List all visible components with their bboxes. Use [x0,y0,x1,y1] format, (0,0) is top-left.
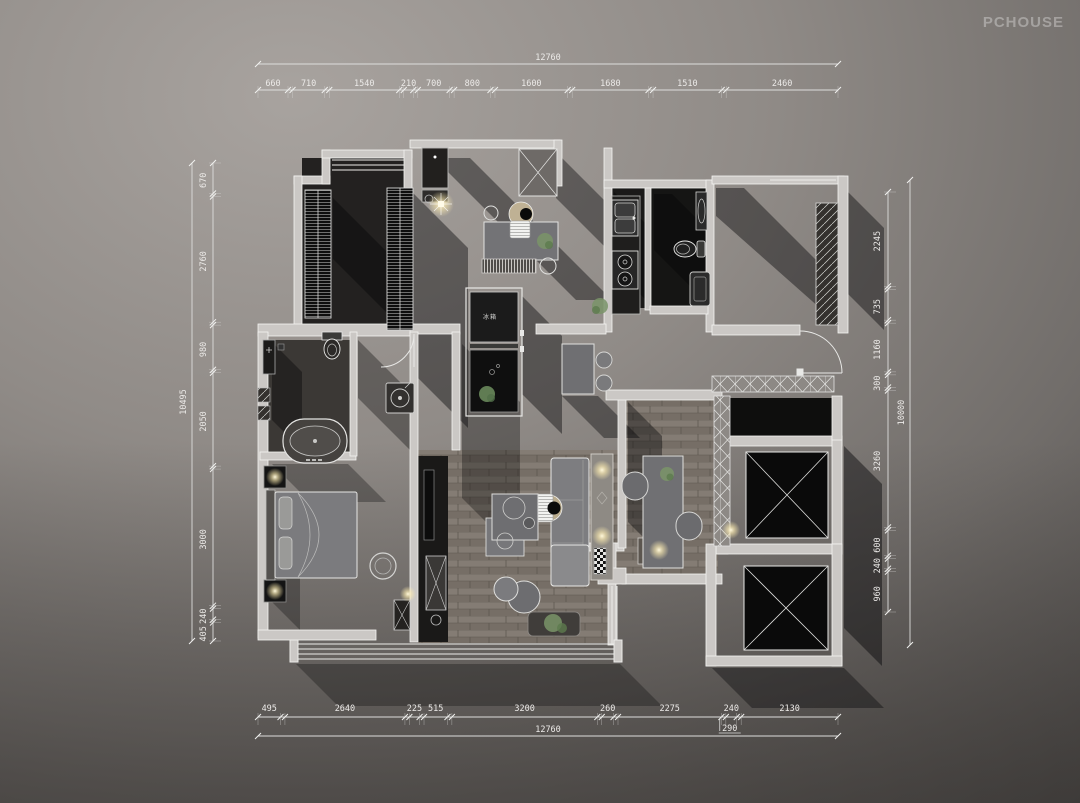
wardrobe-hatch-right [387,188,413,330]
refrigerator-cabinet: 冰箱 [466,288,524,416]
dim-label: 515 [428,704,443,714]
dim-label: 1540 [354,79,374,89]
dim-label: 2050 [199,411,209,431]
dim-label: 2130 [779,704,799,714]
bar-stool [596,352,612,368]
core-hatch-wall-h [712,376,834,392]
structural-column [519,149,557,196]
dim-label: 495 [262,704,277,714]
fridge-label: 冰箱 [483,313,497,321]
bed-icon [266,490,357,580]
dim-label: 210 [401,79,416,89]
dim-label: 960 [873,586,883,601]
dim-total-label: 12760 [535,53,561,63]
dim-label: 405 [199,626,209,641]
lamp-icon [649,540,669,560]
dim-total-label: 10000 [897,400,907,426]
dim-label: 225 [407,704,422,714]
bench-stripes [482,259,536,273]
dim-label: 3260 [873,451,883,471]
dim-label: 260 [600,704,615,714]
pouf [494,577,518,601]
dim-label: 700 [426,79,441,89]
dim-label: 3200 [514,704,534,714]
bar-stool [596,375,612,391]
lamp-icon [266,582,284,600]
wall-niche [258,388,270,402]
dim-label: 600 [873,537,883,552]
plant-icon [660,467,674,481]
dim-label: 2275 [659,704,679,714]
stove-icon [612,251,638,289]
kitchen [612,196,640,314]
dim-label: 1160 [873,339,883,359]
dim-label: 240 [199,608,209,623]
dim-label: 2640 [335,704,355,714]
dim-label: 735 [873,299,883,314]
elevator-shaft-1 [746,452,828,538]
bathtub-icon [283,419,347,463]
lamp-icon [428,191,454,217]
person-dining [509,202,533,238]
pillow [279,537,292,569]
tv-icon [424,470,434,540]
washbasin-icon [696,192,707,230]
wall-niche [258,406,270,420]
dim-label-extra: 290 [722,724,737,734]
dim-label: 670 [199,173,209,188]
lamp-icon [266,468,284,486]
doormat-small [594,548,606,574]
pillow [279,497,292,529]
plant-icon [537,233,553,249]
dim-label: 240 [724,704,739,714]
desk-chair [676,512,702,540]
dim-total-label: 10495 [179,389,189,415]
lamp-icon [722,521,740,539]
watermark: PCHOUSE [983,14,1064,31]
dim-label: 2760 [199,251,209,271]
floorplan-svg: 冰箱 [0,0,1080,803]
dim-label: 710 [301,79,316,89]
wardrobe-hatch-left [305,190,331,318]
dim-label: 660 [265,79,280,89]
desk-chair [622,472,648,500]
toilet-icon [674,241,705,257]
plant-icon [592,298,608,314]
door-panel [394,600,410,630]
floorplan-canvas: 冰箱 [0,0,1080,803]
plant-icon [479,386,495,402]
dim-label: 1510 [677,79,697,89]
shower-icon [690,272,710,306]
dim-label: 2460 [772,79,792,89]
dim-label: 3000 [199,529,209,549]
dim-label: 800 [465,79,480,89]
person-sofa [535,494,562,522]
dim-label: 980 [199,342,209,357]
bedroom-closet [816,203,838,325]
elevator-shaft-2 [744,566,828,650]
lamp-icon [400,586,416,602]
dim-total-label: 12760 [535,725,561,735]
dim-label: 1600 [521,79,541,89]
lamp-icon [592,526,612,546]
sofa-icon [551,458,589,586]
dim-label: 1680 [600,79,620,89]
lamp-icon [592,460,612,480]
washing-machine-icon [386,383,414,413]
dim-label: 2245 [873,231,883,251]
dim-label: 300 [873,376,883,391]
dim-label: 240 [873,558,883,573]
kitchen-sink-icon [612,200,638,236]
